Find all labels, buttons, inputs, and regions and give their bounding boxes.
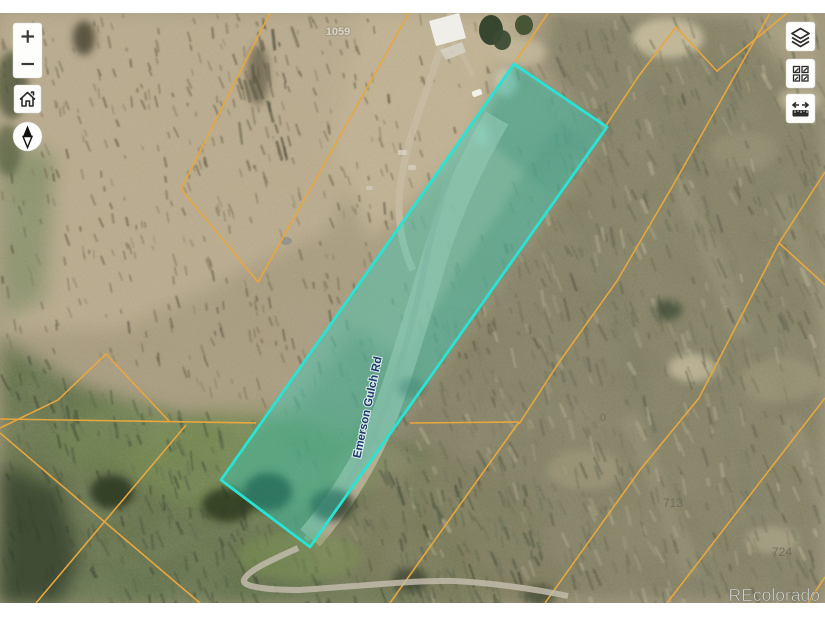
svg-text:1059: 1059 <box>326 26 350 38</box>
svg-text:REcolorado: REcolorado <box>729 585 820 605</box>
svg-text:0: 0 <box>600 412 606 424</box>
svg-text:724: 724 <box>772 545 792 559</box>
svg-text:713: 713 <box>663 496 683 510</box>
